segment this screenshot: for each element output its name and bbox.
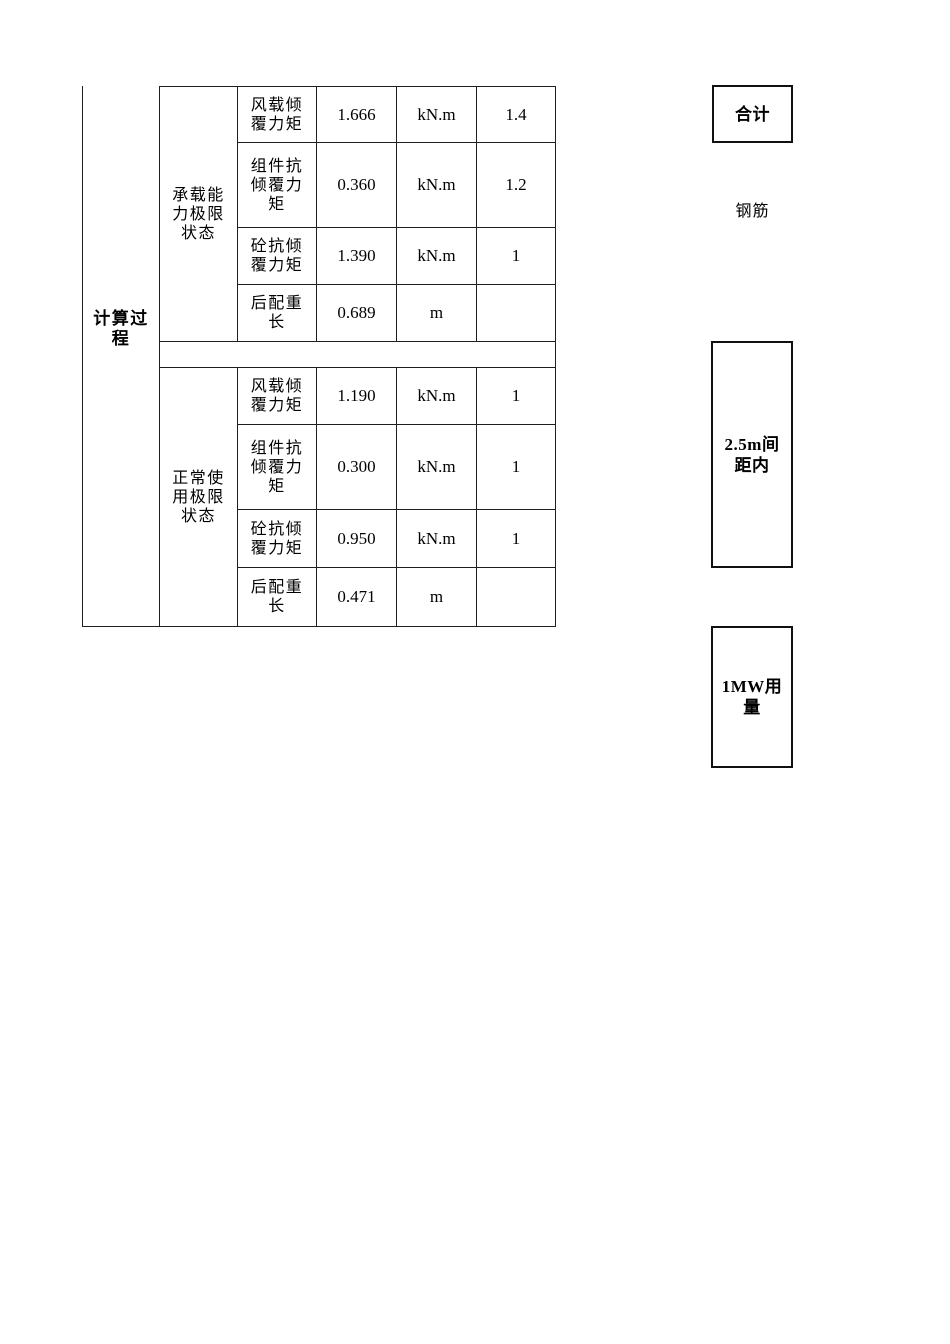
value-cell: 1.190 bbox=[317, 368, 397, 425]
unit-cell: kN.m bbox=[397, 368, 477, 425]
item-cell: 组件抗倾覆力矩 bbox=[238, 143, 317, 228]
factor-cell: 1.2 bbox=[477, 143, 556, 228]
value-cell: 0.300 bbox=[317, 425, 397, 510]
state-cell-normal-use: 正常使用极限状态 bbox=[160, 368, 238, 627]
item-cell: 砼抗倾覆力矩 bbox=[238, 510, 317, 568]
factor-cell bbox=[477, 285, 556, 342]
factor-cell: 1 bbox=[477, 228, 556, 285]
spreadsheet-page: { "table": { "process_label": "计算过程", "s… bbox=[0, 0, 950, 1344]
factor-cell: 1 bbox=[477, 425, 556, 510]
value-cell: 0.360 bbox=[317, 143, 397, 228]
unit-cell: kN.m bbox=[397, 510, 477, 568]
item-cell: 砼抗倾覆力矩 bbox=[238, 228, 317, 285]
rebar-note-text: 钢筋 bbox=[712, 190, 793, 234]
factor-cell: 1 bbox=[477, 368, 556, 425]
spacing-note-box: 2.5m间距内 bbox=[711, 341, 793, 568]
unit-cell: m bbox=[397, 285, 477, 342]
factor-cell: 1.4 bbox=[477, 86, 556, 143]
item-cell: 组件抗倾覆力矩 bbox=[238, 425, 317, 510]
item-cell: 风载倾覆力矩 bbox=[238, 368, 317, 425]
unit-cell: kN.m bbox=[397, 86, 477, 143]
value-cell: 0.471 bbox=[317, 568, 397, 627]
usage-note-box: 1MW用量 bbox=[711, 626, 793, 768]
spacer-row bbox=[160, 342, 556, 368]
factor-cell: 1 bbox=[477, 510, 556, 568]
item-cell: 风载倾覆力矩 bbox=[238, 86, 317, 143]
value-cell: 1.390 bbox=[317, 228, 397, 285]
unit-cell: kN.m bbox=[397, 143, 477, 228]
process-group-cell: 计算过程 bbox=[82, 86, 160, 627]
item-cell: 后配重长 bbox=[238, 568, 317, 627]
unit-cell: kN.m bbox=[397, 425, 477, 510]
value-cell: 0.689 bbox=[317, 285, 397, 342]
value-cell: 0.950 bbox=[317, 510, 397, 568]
total-note-box: 合计 bbox=[712, 85, 793, 143]
state-cell-bearing-capacity: 承载能力极限状态 bbox=[160, 86, 238, 342]
unit-cell: kN.m bbox=[397, 228, 477, 285]
item-cell: 后配重长 bbox=[238, 285, 317, 342]
value-cell: 1.666 bbox=[317, 86, 397, 143]
unit-cell: m bbox=[397, 568, 477, 627]
factor-cell bbox=[477, 568, 556, 627]
